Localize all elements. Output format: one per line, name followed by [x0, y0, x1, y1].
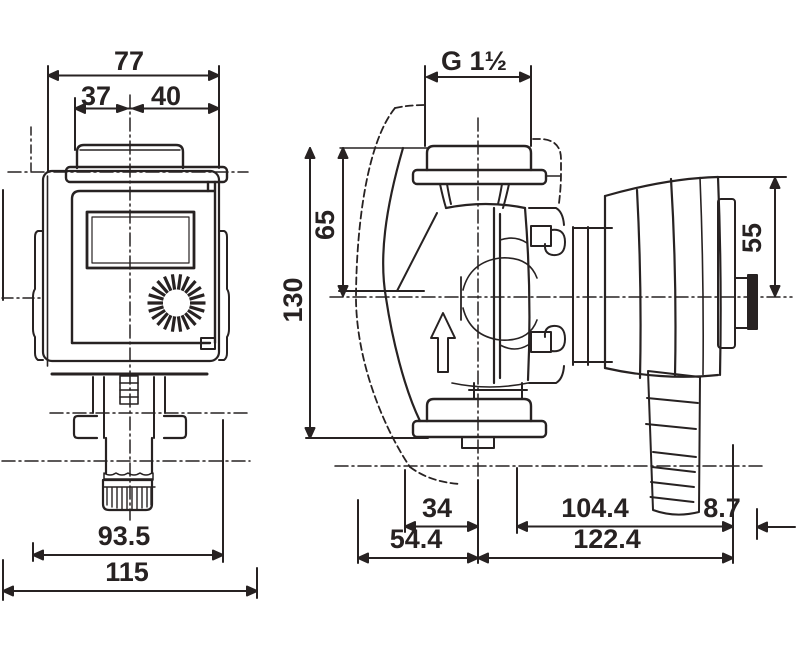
- svg-text:93.5: 93.5: [98, 521, 151, 551]
- svg-text:55: 55: [737, 223, 767, 253]
- svg-text:8.7: 8.7: [703, 493, 741, 523]
- svg-text:G 1½: G 1½: [441, 46, 507, 76]
- svg-text:54.4: 54.4: [390, 524, 443, 554]
- svg-text:40: 40: [151, 81, 181, 111]
- svg-text:77: 77: [114, 46, 144, 76]
- svg-text:122.4: 122.4: [573, 524, 641, 554]
- svg-text:65: 65: [310, 210, 340, 240]
- svg-text:104.4: 104.4: [561, 493, 629, 523]
- svg-text:34: 34: [422, 493, 452, 523]
- svg-text:130: 130: [278, 277, 308, 322]
- svg-text:115: 115: [105, 557, 149, 587]
